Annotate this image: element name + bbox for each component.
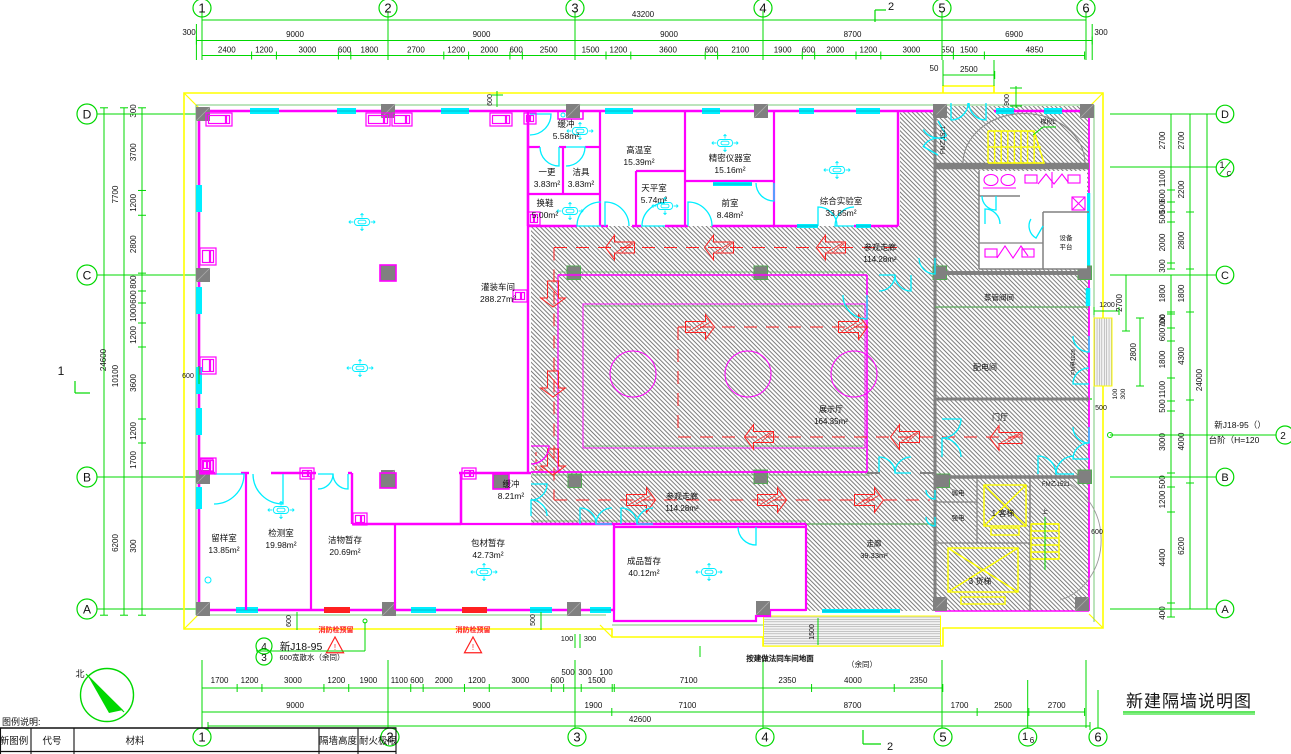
svg-text:7700: 7700 xyxy=(111,185,120,203)
svg-text:天平室: 天平室 xyxy=(641,183,667,193)
svg-text:包材暂存: 包材暂存 xyxy=(471,538,506,548)
svg-text:洁物暂存: 洁物暂存 xyxy=(328,535,363,545)
svg-text:2: 2 xyxy=(384,1,391,16)
svg-text:8700: 8700 xyxy=(844,701,862,710)
svg-text:2700: 2700 xyxy=(407,46,425,55)
svg-text:500: 500 xyxy=(530,614,537,626)
svg-text:2700: 2700 xyxy=(1158,131,1167,149)
svg-text:24600: 24600 xyxy=(99,348,108,371)
svg-text:4850: 4850 xyxy=(1026,46,1044,55)
svg-text:C: C xyxy=(1226,171,1231,178)
svg-text:1: 1 xyxy=(1022,731,1028,743)
svg-text:上: 上 xyxy=(1042,508,1048,516)
svg-text:9000: 9000 xyxy=(286,701,304,710)
svg-text:600宽散水（余同）: 600宽散水（余同） xyxy=(279,652,344,662)
svg-text:8.21m²: 8.21m² xyxy=(498,491,525,501)
svg-text:（余同）: （余同） xyxy=(847,659,877,669)
svg-text:300: 300 xyxy=(129,104,138,118)
svg-text:代号: 代号 xyxy=(42,736,61,747)
svg-text:8700: 8700 xyxy=(844,30,862,39)
svg-text:1900: 1900 xyxy=(774,46,792,55)
svg-text:B: B xyxy=(1221,472,1228,484)
svg-text:展示厅: 展示厅 xyxy=(819,405,843,414)
svg-text:1200: 1200 xyxy=(447,46,465,55)
svg-text:6200: 6200 xyxy=(111,534,120,552)
svg-text:3.83m²: 3.83m² xyxy=(568,179,595,189)
svg-text:2000: 2000 xyxy=(480,46,498,55)
svg-text:2800: 2800 xyxy=(129,235,138,253)
svg-text:100: 100 xyxy=(599,668,613,677)
svg-text:1200: 1200 xyxy=(327,676,345,685)
svg-text:3.83m²: 3.83m² xyxy=(534,179,561,189)
svg-text:缓冲: 缓冲 xyxy=(502,479,519,489)
svg-text:1500: 1500 xyxy=(960,46,978,55)
svg-text:1: 1 xyxy=(198,1,205,16)
svg-text:FM乙1521: FM乙1521 xyxy=(940,125,947,154)
svg-text:600: 600 xyxy=(487,94,494,106)
svg-text:900: 900 xyxy=(1004,94,1011,106)
svg-text:1200: 1200 xyxy=(129,193,138,211)
svg-text:600: 600 xyxy=(410,676,424,685)
svg-text:1200: 1200 xyxy=(255,46,273,55)
svg-text:800: 800 xyxy=(129,275,138,289)
svg-text:3000: 3000 xyxy=(299,46,317,55)
svg-text:1200: 1200 xyxy=(610,46,628,55)
svg-text:33.85m²: 33.85m² xyxy=(825,208,856,218)
svg-text:15.39m²: 15.39m² xyxy=(623,157,654,167)
svg-text:新图例: 新图例 xyxy=(0,735,28,747)
svg-text:弱电: 弱电 xyxy=(952,488,966,497)
svg-text:1: 1 xyxy=(58,364,65,378)
svg-text:24000: 24000 xyxy=(1195,368,1204,391)
svg-text:2: 2 xyxy=(1280,431,1286,442)
svg-text:2: 2 xyxy=(887,741,893,753)
svg-text:1500: 1500 xyxy=(582,46,600,55)
svg-text:1100: 1100 xyxy=(1158,169,1167,187)
svg-text:2350: 2350 xyxy=(910,676,928,685)
svg-text:1200: 1200 xyxy=(860,46,878,55)
svg-text:20.69m²: 20.69m² xyxy=(329,547,360,557)
svg-text:500: 500 xyxy=(1158,210,1167,224)
svg-text:43200: 43200 xyxy=(632,10,655,19)
svg-text:台阶（H=120: 台阶（H=120 xyxy=(1209,435,1260,445)
svg-text:40.12m²: 40.12m² xyxy=(628,568,659,578)
svg-text:2000: 2000 xyxy=(826,46,844,55)
svg-text:9000: 9000 xyxy=(660,30,678,39)
svg-text:7100: 7100 xyxy=(680,676,698,685)
svg-text:300: 300 xyxy=(1094,28,1108,37)
svg-text:3: 3 xyxy=(573,730,580,745)
svg-text:2500: 2500 xyxy=(994,701,1012,710)
svg-text:2500: 2500 xyxy=(960,65,978,74)
svg-text:2700: 2700 xyxy=(1177,131,1186,149)
svg-text:600: 600 xyxy=(129,290,138,304)
svg-text:288.27m²: 288.27m² xyxy=(480,294,516,304)
svg-text:1700: 1700 xyxy=(211,676,229,685)
svg-text:5: 5 xyxy=(938,1,945,16)
svg-text:42600: 42600 xyxy=(629,715,652,724)
svg-text:1700: 1700 xyxy=(129,451,138,469)
svg-text:114.28m²: 114.28m² xyxy=(665,504,699,513)
svg-text:500: 500 xyxy=(561,668,575,677)
svg-text:洁具: 洁具 xyxy=(572,167,590,177)
svg-text:4: 4 xyxy=(759,1,766,16)
svg-text:100: 100 xyxy=(1160,314,1167,326)
svg-text:换鞋: 换鞋 xyxy=(536,198,554,208)
svg-text:600: 600 xyxy=(802,46,816,55)
svg-text:15.16m²: 15.16m² xyxy=(714,165,745,175)
svg-text:4: 4 xyxy=(761,730,768,745)
svg-text:前室: 前室 xyxy=(721,198,739,208)
svg-text:39.33m²: 39.33m² xyxy=(860,551,888,560)
svg-text:600: 600 xyxy=(509,46,523,55)
svg-text:1200: 1200 xyxy=(468,676,486,685)
svg-text:600: 600 xyxy=(1158,327,1167,341)
svg-text:新建隔墙说明图: 新建隔墙说明图 xyxy=(1126,692,1252,711)
svg-text:D: D xyxy=(1221,109,1229,121)
svg-text:9000: 9000 xyxy=(286,30,304,39)
svg-text:B: B xyxy=(83,470,91,484)
svg-text:配电间: 配电间 xyxy=(973,362,997,372)
svg-text:100: 100 xyxy=(561,634,574,643)
svg-text:1 客梯: 1 客梯 xyxy=(992,508,1015,518)
svg-text:1900: 1900 xyxy=(359,676,377,685)
svg-text:耐火极限: 耐火极限 xyxy=(359,735,398,747)
svg-text:6: 6 xyxy=(1094,730,1101,745)
svg-text:6900: 6900 xyxy=(1005,30,1023,39)
svg-text:A: A xyxy=(83,602,91,616)
svg-text:1800: 1800 xyxy=(1177,284,1186,302)
svg-text:2100: 2100 xyxy=(731,46,749,55)
svg-text:600: 600 xyxy=(1091,529,1103,536)
svg-text:4400: 4400 xyxy=(1158,548,1167,566)
svg-text:1200: 1200 xyxy=(129,326,138,344)
svg-text:300: 300 xyxy=(578,668,592,677)
svg-text:3700: 3700 xyxy=(129,143,138,161)
svg-text:1200: 1200 xyxy=(1158,490,1167,508)
svg-text:北: 北 xyxy=(75,669,84,679)
svg-text:新J18-95: 新J18-95 xyxy=(280,640,323,653)
svg-text:600: 600 xyxy=(705,46,719,55)
svg-text:2200: 2200 xyxy=(1177,180,1186,198)
svg-text:1100: 1100 xyxy=(391,676,409,685)
svg-text:2: 2 xyxy=(888,1,894,13)
svg-text:5.58m²: 5.58m² xyxy=(553,131,580,141)
svg-text:消防栓预留: 消防栓预留 xyxy=(319,625,354,634)
svg-text:留样室: 留样室 xyxy=(211,533,237,543)
svg-text:灌装车间: 灌装车间 xyxy=(481,282,515,292)
svg-text:3600: 3600 xyxy=(659,46,677,55)
svg-text:10100: 10100 xyxy=(111,364,120,387)
svg-text:500: 500 xyxy=(1095,405,1107,412)
svg-text:2800: 2800 xyxy=(1129,343,1138,361)
svg-text:1700: 1700 xyxy=(951,701,969,710)
svg-text:D: D xyxy=(83,107,92,121)
svg-text:6: 6 xyxy=(1030,736,1035,745)
svg-text:6: 6 xyxy=(1082,1,1089,16)
svg-text:5: 5 xyxy=(939,730,946,745)
svg-text:300: 300 xyxy=(584,634,597,643)
svg-text:强电: 强电 xyxy=(952,513,966,522)
svg-text:3000: 3000 xyxy=(284,676,302,685)
svg-text:1100: 1100 xyxy=(1158,380,1167,398)
svg-text:一更: 一更 xyxy=(538,167,556,177)
svg-text:4300: 4300 xyxy=(1177,347,1186,365)
svg-text:600: 600 xyxy=(286,615,293,627)
svg-text:550: 550 xyxy=(941,46,955,55)
svg-text:1800: 1800 xyxy=(361,46,379,55)
svg-text:2000: 2000 xyxy=(435,676,453,685)
svg-text:4000: 4000 xyxy=(844,676,862,685)
svg-text:缓冲: 缓冲 xyxy=(557,119,574,129)
svg-text:消防栓预留: 消防栓预留 xyxy=(456,625,491,634)
svg-text:检测室: 检测室 xyxy=(268,528,294,538)
svg-text:114.28m²: 114.28m² xyxy=(863,255,897,264)
svg-text:按建做法同车间地面: 按建做法同车间地面 xyxy=(746,653,814,663)
svg-text:1: 1 xyxy=(198,730,205,745)
svg-text:600: 600 xyxy=(338,46,352,55)
svg-text:平台: 平台 xyxy=(1060,242,1073,251)
svg-text:300: 300 xyxy=(182,28,196,37)
svg-text:C: C xyxy=(83,268,92,282)
svg-text:参观走廊: 参观走廊 xyxy=(864,242,896,252)
svg-text:FM甲1029: FM甲1029 xyxy=(1070,349,1077,375)
svg-text:材料: 材料 xyxy=(125,735,145,747)
svg-text:600: 600 xyxy=(551,676,565,685)
svg-text:1200: 1200 xyxy=(1099,302,1115,309)
svg-text:2800: 2800 xyxy=(1177,231,1186,249)
svg-text:图例说明:: 图例说明: xyxy=(2,716,41,727)
svg-text:3: 3 xyxy=(261,653,267,664)
svg-text:综合实验室: 综合实验室 xyxy=(820,196,863,206)
svg-text:1800: 1800 xyxy=(1158,284,1167,302)
svg-text:门厅: 门厅 xyxy=(992,412,1008,422)
svg-text:19.98m²: 19.98m² xyxy=(265,540,296,550)
svg-text:50: 50 xyxy=(930,64,939,73)
svg-text:42.73m²: 42.73m² xyxy=(472,550,503,560)
svg-text:1000: 1000 xyxy=(129,304,138,322)
svg-text:隔墙高度: 隔墙高度 xyxy=(319,735,358,747)
svg-text:5.00m²: 5.00m² xyxy=(532,210,559,220)
svg-text:梯段L: 梯段L xyxy=(1040,118,1056,126)
svg-text:2700: 2700 xyxy=(1115,294,1124,312)
svg-text:蒸管阀间: 蒸管阀间 xyxy=(984,292,1014,302)
svg-text:7100: 7100 xyxy=(679,701,697,710)
svg-text:A: A xyxy=(1221,604,1229,616)
svg-text:100: 100 xyxy=(1112,388,1119,399)
svg-text:成品暂存: 成品暂存 xyxy=(627,556,662,566)
svg-text:1200: 1200 xyxy=(129,422,138,440)
svg-text:走廊: 走廊 xyxy=(867,538,882,548)
svg-text:8.48m²: 8.48m² xyxy=(717,210,744,220)
svg-text:3 货梯: 3 货梯 xyxy=(969,576,992,586)
svg-text:1200: 1200 xyxy=(241,676,259,685)
svg-text:9000: 9000 xyxy=(473,701,491,710)
svg-text:1800: 1800 xyxy=(1158,350,1167,368)
svg-text:参观走廊: 参观走廊 xyxy=(666,491,698,501)
svg-text:3600: 3600 xyxy=(129,374,138,392)
svg-text:FM乙1521: FM乙1521 xyxy=(1042,481,1071,488)
svg-text:3: 3 xyxy=(571,1,578,16)
svg-text:精密仪器室: 精密仪器室 xyxy=(709,153,752,163)
svg-text:13.85m²: 13.85m² xyxy=(208,545,239,555)
svg-text:1500: 1500 xyxy=(588,676,606,685)
svg-text:400: 400 xyxy=(1158,606,1167,620)
svg-text:2400: 2400 xyxy=(218,46,236,55)
svg-text:1500: 1500 xyxy=(809,624,816,640)
svg-text:3000: 3000 xyxy=(511,676,529,685)
svg-text:1900: 1900 xyxy=(585,701,603,710)
svg-text:6200: 6200 xyxy=(1177,537,1186,555)
svg-text:500: 500 xyxy=(1158,399,1167,413)
svg-text:C: C xyxy=(1221,270,1229,282)
svg-text:设备: 设备 xyxy=(1060,233,1074,242)
svg-text:2000: 2000 xyxy=(1158,233,1167,251)
svg-text:300: 300 xyxy=(129,539,138,553)
svg-text:5.74m²: 5.74m² xyxy=(641,195,668,205)
svg-text:300: 300 xyxy=(1120,388,1127,399)
svg-text:9000: 9000 xyxy=(473,30,491,39)
svg-text:2700: 2700 xyxy=(1048,701,1066,710)
svg-text:164.35m²: 164.35m² xyxy=(814,417,848,426)
svg-text:3000: 3000 xyxy=(903,46,921,55)
svg-text:300: 300 xyxy=(1158,259,1167,273)
svg-text:新J18-95（）: 新J18-95（） xyxy=(1214,420,1266,430)
svg-text:2350: 2350 xyxy=(778,676,796,685)
svg-text:!: ! xyxy=(472,643,474,652)
svg-text:高温室: 高温室 xyxy=(626,145,652,155)
svg-text:1: 1 xyxy=(1219,160,1224,170)
svg-text:600: 600 xyxy=(182,373,194,380)
svg-text:2500: 2500 xyxy=(540,46,558,55)
